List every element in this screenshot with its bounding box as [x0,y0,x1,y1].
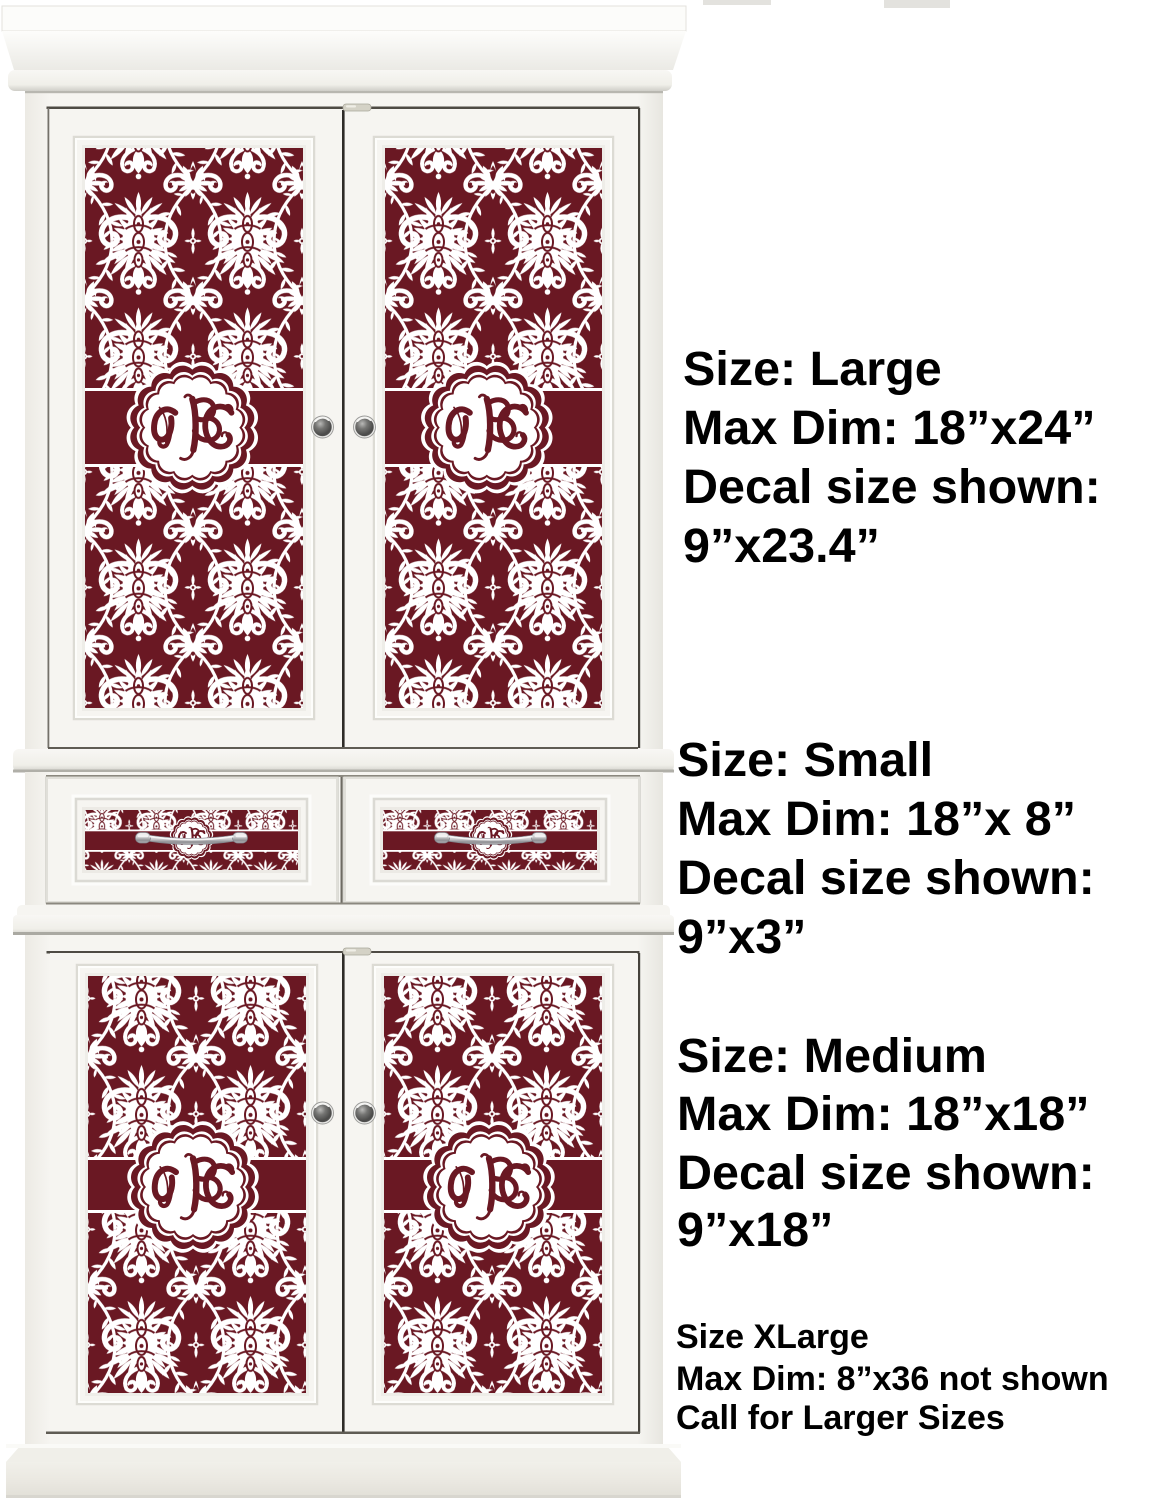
svg-text:Decal size shown:: Decal size shown: [683,460,1101,514]
svg-text:Max Dim: 18”x 8”: Max Dim: 18”x 8” [677,792,1076,846]
svg-text:Max Dim: 18”x24”: Max Dim: 18”x24” [683,401,1095,455]
svg-text:9”x23.4”: 9”x23.4” [683,519,880,573]
svg-text:Size: Small: Size: Small [677,733,933,787]
svg-text:Decal size shown:: Decal size shown: [677,851,1095,905]
svg-text:Size: Medium: Size: Medium [677,1029,987,1083]
svg-text:Size: Large: Size: Large [683,342,942,396]
svg-text:Decal size shown:: Decal size shown: [677,1146,1095,1200]
svg-text:9”x18”: 9”x18” [677,1203,833,1257]
svg-text:Max Dim: 18”x18”: Max Dim: 18”x18” [677,1087,1089,1141]
svg-text:Size XLarge: Size XLarge [676,1318,869,1356]
svg-text:Call for Larger Sizes: Call for Larger Sizes [676,1399,1005,1437]
svg-text:Max Dim: 8”x36 not shown: Max Dim: 8”x36 not shown [676,1360,1109,1398]
svg-text:9”x3”: 9”x3” [677,910,806,964]
